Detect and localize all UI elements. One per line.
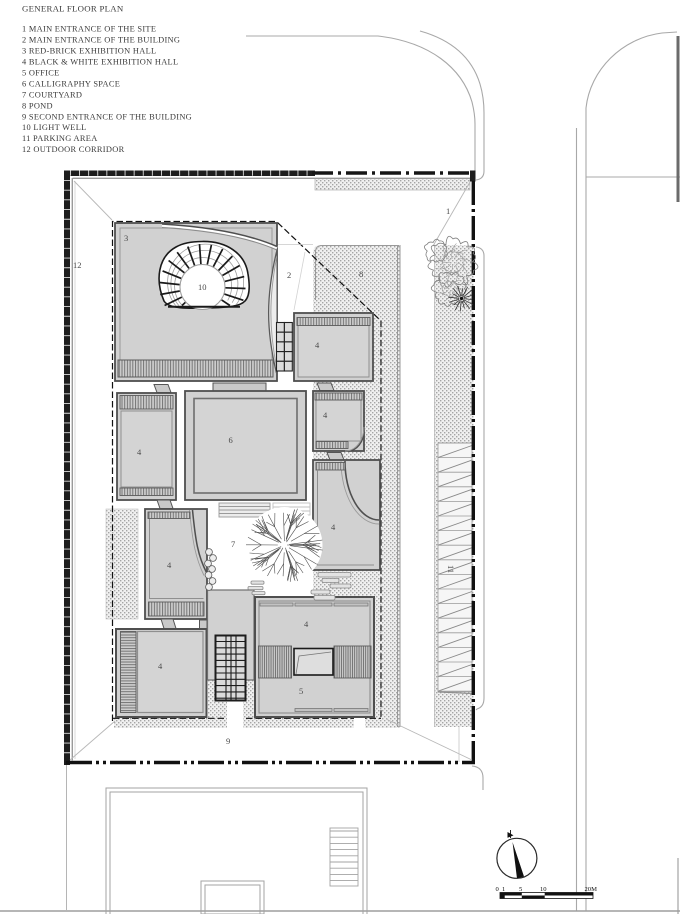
svg-text:11: 11 (446, 565, 456, 573)
svg-text:2 MAIN ENTRANCE OF THE BUILDI: 2 MAIN ENTRANCE OF THE BUILDING (22, 36, 180, 45)
svg-text:12: 12 (73, 260, 82, 270)
svg-text:10 LIGHT WELL: 10 LIGHT WELL (22, 123, 87, 132)
svg-text:1 MAIN ENTRANCE OF THE SITE: 1 MAIN ENTRANCE OF THE SITE (22, 25, 156, 34)
svg-text:5: 5 (299, 686, 303, 696)
svg-text:2: 2 (287, 270, 291, 280)
svg-text:1: 1 (502, 886, 505, 893)
svg-text:5 OFFICE: 5 OFFICE (22, 68, 60, 77)
svg-text:3: 3 (124, 233, 128, 243)
svg-text:20M: 20M (585, 886, 598, 893)
svg-text:9 SECOND ENTRANCE OF THE BUIL: 9 SECOND ENTRANCE OF THE BUILDING (22, 112, 192, 121)
svg-text:7: 7 (231, 539, 235, 549)
svg-text:10: 10 (198, 282, 207, 292)
svg-text:12 OUTDOOR CORRIDOR: 12 OUTDOOR CORRIDOR (22, 145, 125, 154)
svg-text:9: 9 (226, 736, 230, 746)
svg-text:8 POND: 8 POND (22, 101, 53, 110)
svg-text:GENERAL FLOOR PLAN: GENERAL FLOOR PLAN (22, 4, 124, 14)
svg-text:4 BLACK & WHITE EXHIBITION HA: 4 BLACK & WHITE EXHIBITION HALL (22, 58, 178, 67)
svg-text:7 COURTYARD: 7 COURTYARD (22, 90, 82, 99)
svg-text:1: 1 (446, 206, 450, 216)
svg-text:3 RED-BRICK EXHIBITION HALL: 3 RED-BRICK EXHIBITION HALL (22, 47, 156, 56)
svg-text:11 PARKING AREA: 11 PARKING AREA (22, 134, 98, 143)
svg-text:8: 8 (359, 269, 363, 279)
svg-text:10: 10 (540, 886, 547, 893)
svg-text:6: 6 (229, 435, 233, 445)
svg-text:6 CALLIGRAPHY SPACE: 6 CALLIGRAPHY SPACE (22, 79, 120, 88)
